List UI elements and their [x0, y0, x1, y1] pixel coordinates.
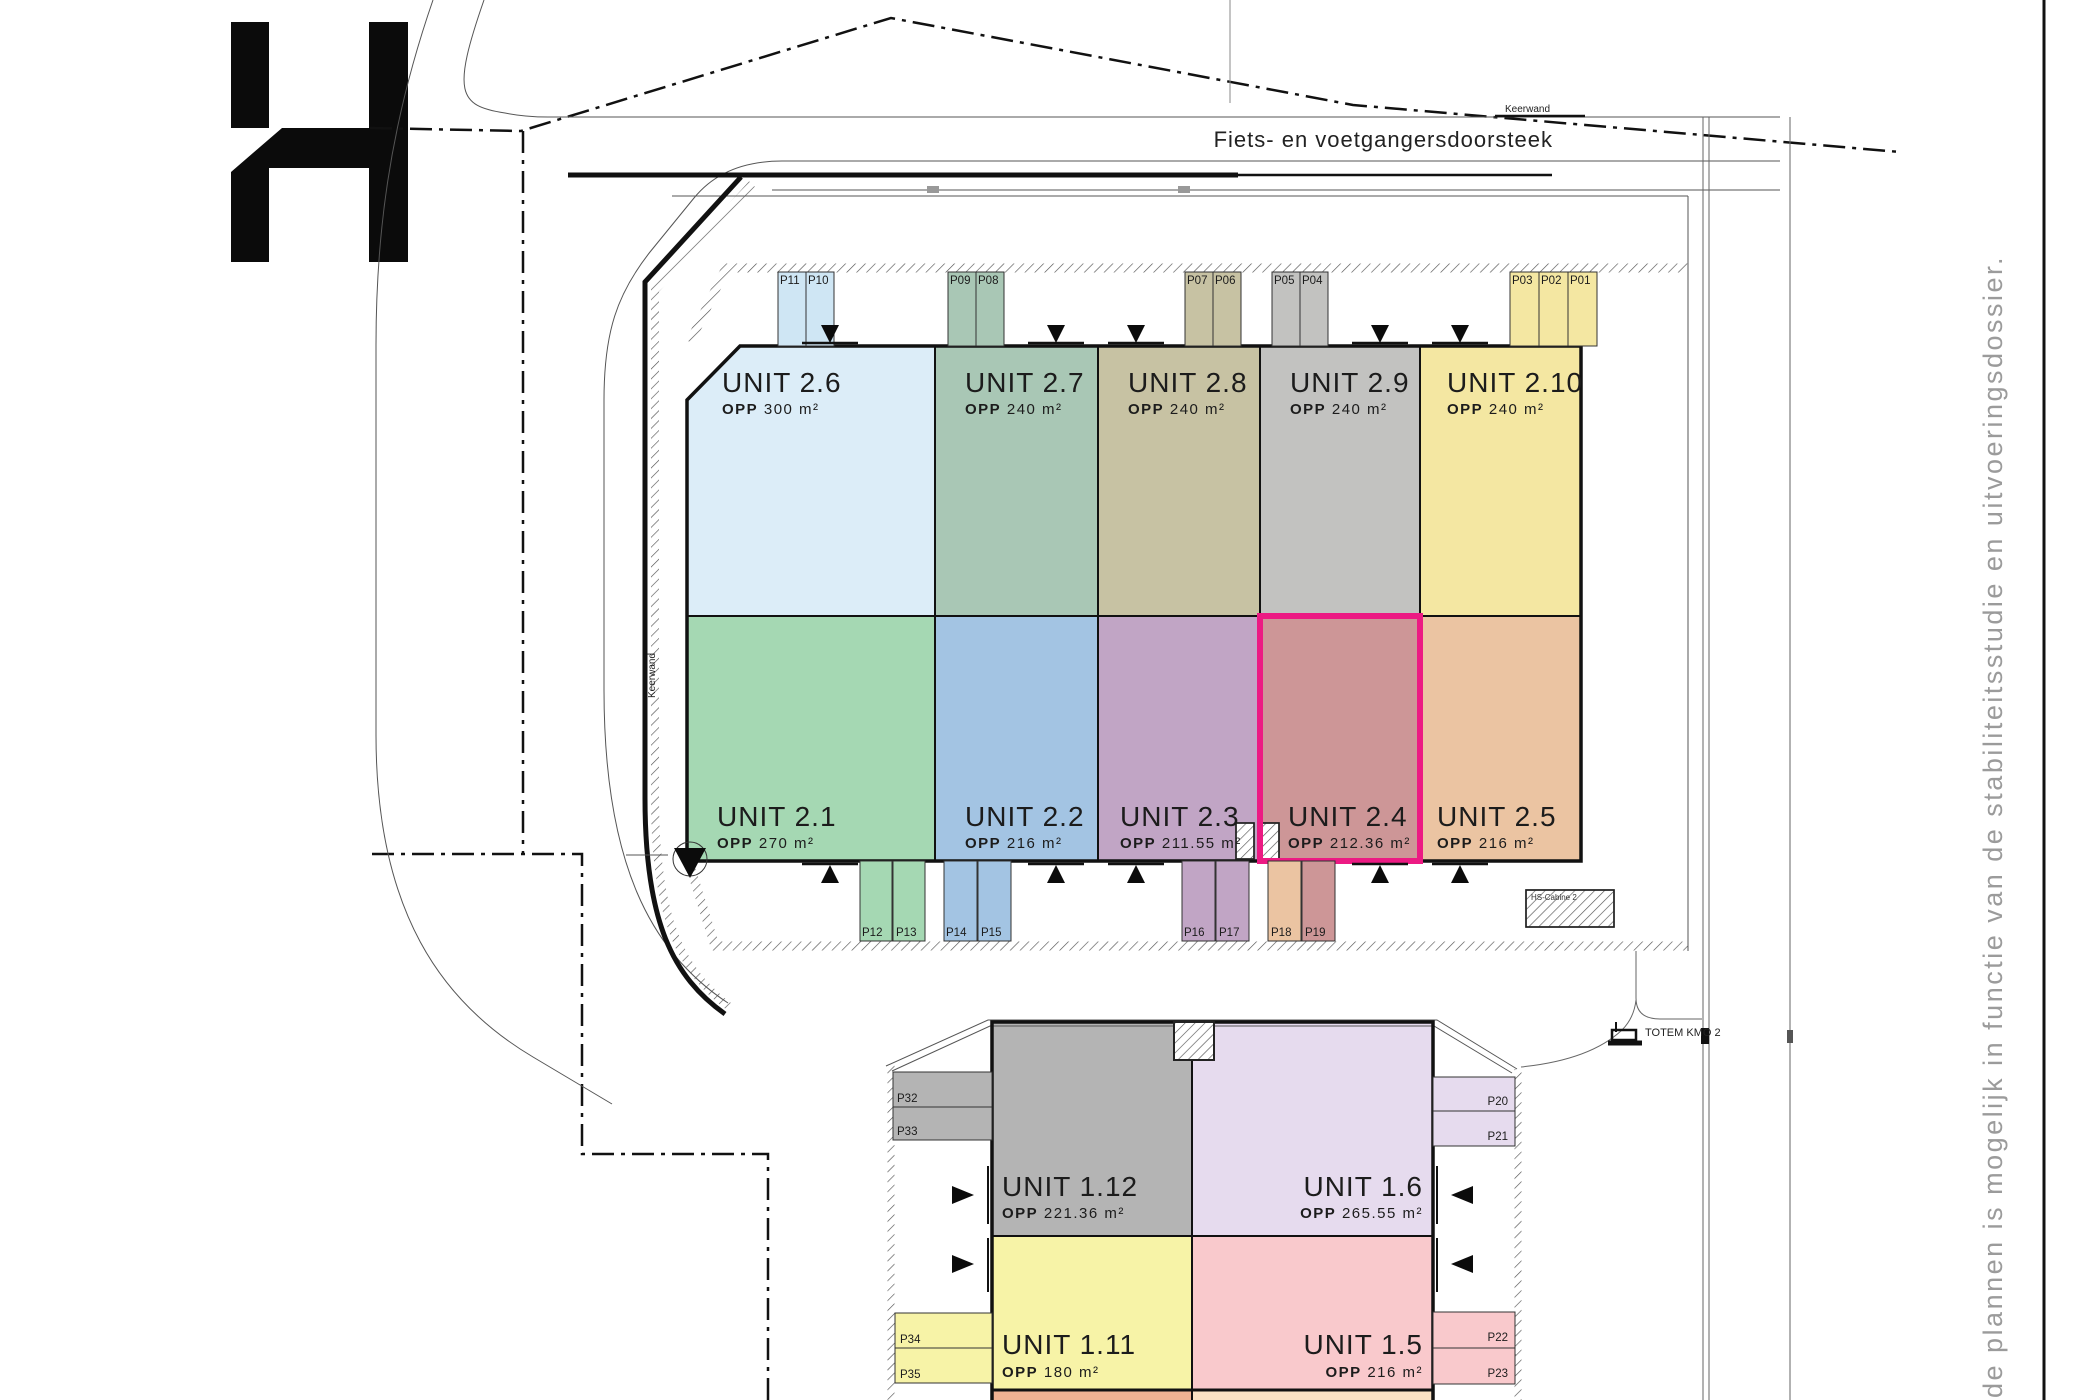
unit-1.12[interactable] [992, 1022, 1192, 1236]
parking-label: P13 [896, 927, 916, 939]
parking-label: P08 [978, 275, 998, 287]
svg-text:OPP 270 m²: OPP 270 m² [717, 835, 815, 852]
unit-label: UNIT 2.6 [722, 367, 842, 398]
unit-1.6[interactable] [1192, 1022, 1433, 1236]
unit-label: UNIT 1.5 [1303, 1329, 1423, 1360]
parking-label: P15 [981, 927, 1001, 939]
unit-label: UNIT 2.2 [965, 801, 1085, 832]
svg-text:OPP 212.36 m²: OPP 212.36 m² [1288, 835, 1411, 852]
parking-label: P12 [862, 927, 882, 939]
svg-text:OPP 240 m²: OPP 240 m² [965, 401, 1063, 418]
unit-label: UNIT 2.7 [965, 367, 1085, 398]
unit-label: UNIT 1.11 [1002, 1329, 1136, 1360]
parking-label: P01 [1570, 275, 1590, 287]
parking-label: P35 [900, 1369, 920, 1381]
parking-label: P06 [1215, 275, 1235, 287]
site-plan-svg: UNIT 2.6 OPP 300 m² UNIT 2.7 OPP 240 m² … [0, 0, 2100, 1400]
parking-label: P11 [780, 275, 800, 287]
parking-label: P02 [1541, 275, 1561, 287]
parking-label: P32 [897, 1093, 917, 1105]
parking-label: P09 [950, 275, 970, 287]
svg-text:OPP 240 m²: OPP 240 m² [1447, 401, 1545, 418]
parking-label: P14 [946, 927, 967, 939]
svg-text:OPP 216 m²: OPP 216 m² [1437, 835, 1535, 852]
keerwand-top: Keerwand [1495, 104, 1585, 116]
unit-label: UNIT 2.9 [1290, 367, 1410, 398]
svg-text:OPP 216 m²: OPP 216 m² [965, 835, 1063, 852]
unit-label: UNIT 2.10 [1447, 367, 1583, 398]
hs-cabine-label: HS-Cabine 2 [1531, 893, 1577, 902]
svg-text:OPP 180 m²: OPP 180 m² [1002, 1364, 1100, 1381]
parking-label: P04 [1302, 275, 1323, 287]
parking-label: P20 [1488, 1096, 1508, 1108]
parking-label: P19 [1305, 927, 1325, 939]
corridor-label: Fiets- en voetgangersdoorsteek [1214, 127, 1553, 152]
logo-h-icon [231, 22, 408, 262]
svg-text:OPP 216 m²: OPP 216 m² [1325, 1364, 1423, 1381]
unit-label: UNIT 2.3 [1120, 801, 1240, 832]
svg-text:OPP 240 m²: OPP 240 m² [1290, 401, 1388, 418]
keerwand-left: Keerwand [647, 653, 658, 698]
parking-label: P10 [808, 275, 828, 287]
site-plan-page: UNIT 2.6 OPP 300 m² UNIT 2.7 OPP 240 m² … [0, 0, 2100, 1400]
parking-label: P23 [1488, 1368, 1508, 1380]
parking-label: P07 [1187, 275, 1207, 287]
parking-label: P21 [1488, 1131, 1508, 1143]
unit-label: UNIT 2.5 [1437, 801, 1557, 832]
unit-label: UNIT 2.8 [1128, 367, 1248, 398]
parking-label: P33 [897, 1126, 917, 1138]
svg-text:Keerwand: Keerwand [1505, 104, 1550, 115]
parking-label: P16 [1184, 927, 1204, 939]
parking-bottom [860, 861, 1335, 941]
parking-label: P17 [1219, 927, 1239, 939]
unit-label: UNIT 2.1 [717, 801, 837, 832]
parking-label: P03 [1512, 275, 1532, 287]
svg-text:OPP 211.55 m²: OPP 211.55 m² [1120, 835, 1242, 852]
svg-text:OPP 300 m²: OPP 300 m² [722, 401, 820, 418]
parking-label: P22 [1488, 1332, 1508, 1344]
disclaimer-vertical: de plannen is mogelijk in functie van de… [1978, 255, 2008, 1398]
svg-text:OPP 221.36 m²: OPP 221.36 m² [1002, 1205, 1125, 1222]
unit-label: UNIT 1.6 [1303, 1171, 1423, 1202]
drain-tick [927, 186, 939, 193]
totem-label: TOTEM KMO 2 [1645, 1027, 1721, 1039]
drain-tick [1178, 186, 1190, 193]
unit-label: UNIT 1.12 [1002, 1171, 1138, 1202]
hs-cabine: HS-Cabine 2 [1526, 890, 1614, 927]
parking-label: P18 [1271, 927, 1291, 939]
svg-text:OPP 240 m²: OPP 240 m² [1128, 401, 1226, 418]
road-tick [1787, 1030, 1793, 1043]
entrance-arrows-top [802, 325, 1488, 343]
service-shaft [1174, 1022, 1214, 1060]
parking-label: P05 [1274, 275, 1294, 287]
svg-text:OPP 265.55 m²: OPP 265.55 m² [1300, 1205, 1423, 1222]
unit-label: UNIT 2.4 [1288, 801, 1408, 832]
parking-label: P34 [900, 1334, 921, 1346]
